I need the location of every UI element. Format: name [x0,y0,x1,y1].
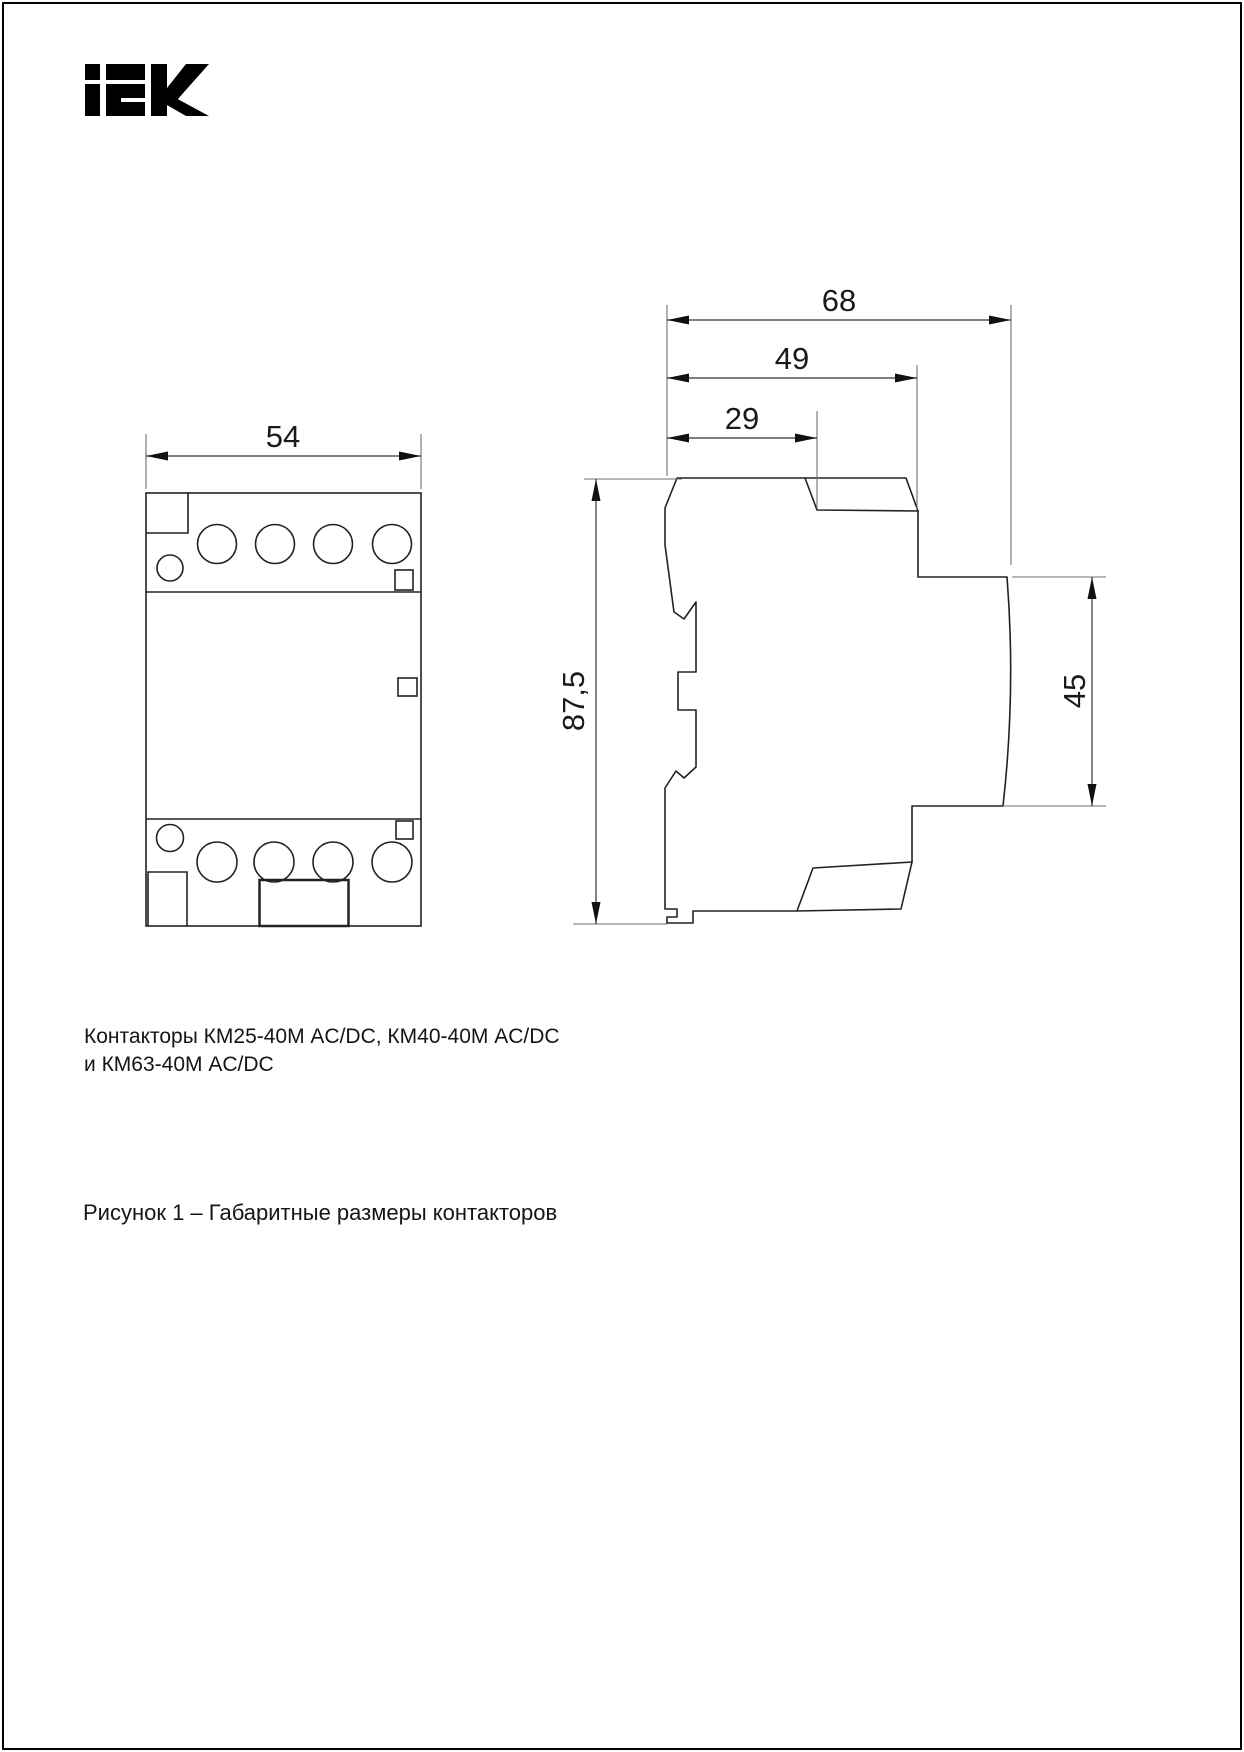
figure-label: Рисунок 1 – Габаритные размеры контактор… [83,1199,557,1227]
dim-label-depth-top: 29 [725,401,759,436]
side-top-recess [805,478,918,511]
extension-lines [146,305,1106,924]
dimension-arrows [146,316,1097,925]
document-page: { "logo": { "brand": "iEK", "color": "#0… [0,0,1244,1752]
front-middle-marker [398,678,417,696]
product-caption-line2: и КМ63-40М AC/DC [84,1051,560,1079]
front-bottom-marker [396,821,413,839]
screw-hole [157,555,183,581]
dimension-lines [146,320,1092,924]
dim-label-depth-body: 49 [775,341,809,376]
front-top-marker [395,570,413,590]
terminal-hole [254,842,294,882]
front-bottom-left-block [148,872,187,926]
side-view-outline [665,478,1011,923]
dim-label-height-total: 87,5 [556,671,591,731]
dim-label-depth-total: 68 [822,283,856,318]
dim-label-front-height: 45 [1057,674,1092,708]
terminal-hole [198,525,237,564]
side-view [665,478,1011,923]
terminal-hole [372,842,412,882]
front-view [146,493,421,926]
front-view-outline [146,493,421,926]
front-top-left-notch [146,493,188,533]
dim-label-front-width: 54 [266,419,300,454]
terminal-hole [197,842,237,882]
terminal-hole [373,525,412,564]
terminal-hole [256,525,295,564]
dimension-drawing: 54 68 49 29 87,5 45 [0,0,1244,1752]
side-bottom-recess [797,862,912,911]
product-caption: Контакторы КМ25-40М AC/DC, КМ40-40М AC/D… [84,1023,560,1079]
front-bottom-center-block [260,880,349,926]
product-caption-line1: Контакторы КМ25-40М AC/DC, КМ40-40М AC/D… [84,1023,560,1051]
terminal-hole [313,842,353,882]
screw-hole [157,825,184,852]
terminal-hole [314,525,353,564]
